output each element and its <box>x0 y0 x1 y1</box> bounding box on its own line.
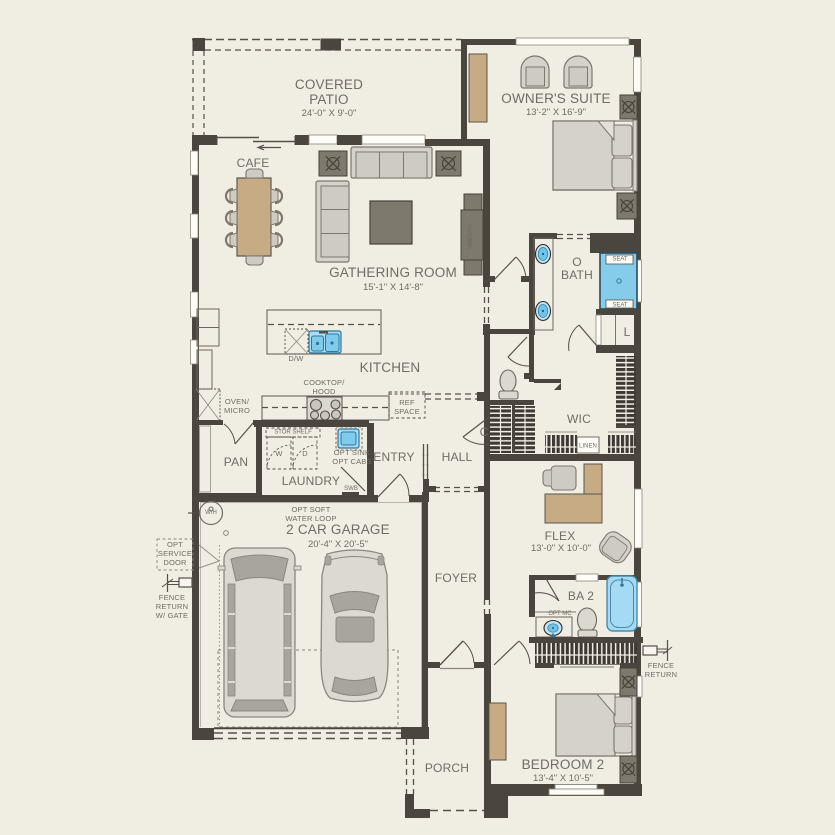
svg-text:COOKTOP/: COOKTOP/ <box>303 378 345 387</box>
svg-text:RETURN: RETURN <box>156 602 188 611</box>
svg-text:OPT CABS: OPT CABS <box>332 457 371 466</box>
svg-text:15'-1" X 14'-8": 15'-1" X 14'-8" <box>363 282 423 293</box>
svg-text:BA 2: BA 2 <box>568 589 594 603</box>
svg-text:13'-0" X 10'-0": 13'-0" X 10'-0" <box>531 543 591 554</box>
svg-text:L: L <box>624 325 631 339</box>
svg-text:OPT: OPT <box>167 540 183 549</box>
svg-text:FLEX: FLEX <box>545 529 576 543</box>
svg-text:RETURN: RETURN <box>645 670 677 679</box>
svg-text:PATIO: PATIO <box>309 92 349 107</box>
svg-text:SPACE: SPACE <box>394 407 420 416</box>
svg-text:FENCE: FENCE <box>159 593 185 602</box>
svg-text:BEDROOM 2: BEDROOM 2 <box>522 757 605 772</box>
svg-text:GATHERING ROOM: GATHERING ROOM <box>329 265 457 280</box>
svg-text:2 CAR GARAGE: 2 CAR GARAGE <box>286 522 390 537</box>
svg-text:PORCH: PORCH <box>425 761 469 775</box>
svg-text:C: C <box>480 425 489 439</box>
svg-text:OPT SINK: OPT SINK <box>334 448 370 457</box>
svg-text:CAFE: CAFE <box>237 156 270 170</box>
svg-text:BATH: BATH <box>561 268 593 282</box>
svg-text:FENCE: FENCE <box>648 661 674 670</box>
svg-text:SWB: SWB <box>344 486 358 492</box>
svg-text:REF: REF <box>399 398 415 407</box>
svg-text:KITCHEN: KITCHEN <box>360 360 421 375</box>
svg-text:HALL: HALL <box>442 450 473 464</box>
svg-text:SERVICE: SERVICE <box>158 549 192 558</box>
svg-text:O: O <box>572 255 582 269</box>
svg-text:W/H: W/H <box>205 510 217 516</box>
svg-text:COVERED: COVERED <box>295 77 363 92</box>
svg-text:SEAT: SEAT <box>612 303 628 309</box>
svg-text:ENTRY: ENTRY <box>373 450 414 464</box>
svg-text:DOOR: DOOR <box>163 558 187 567</box>
svg-text:W/ GATE: W/ GATE <box>156 611 189 620</box>
svg-text:D: D <box>302 449 308 458</box>
svg-text:W: W <box>275 449 283 458</box>
svg-text:HOOD: HOOD <box>312 387 336 396</box>
svg-text:13'-4" X 10'-5": 13'-4" X 10'-5" <box>533 773 593 784</box>
svg-text:D/W: D/W <box>288 354 304 363</box>
svg-text:OPT SOFT: OPT SOFT <box>292 505 331 514</box>
svg-text:LINEN: LINEN <box>579 444 597 450</box>
svg-text:PAN: PAN <box>224 455 248 469</box>
svg-text:MICRO: MICRO <box>224 406 250 415</box>
svg-text:20'-4" X 20'-5": 20'-4" X 20'-5" <box>308 539 368 550</box>
svg-text:13'-2" X 16'-9": 13'-2" X 16'-9" <box>526 107 586 118</box>
svg-text:WIC: WIC <box>567 412 591 426</box>
svg-text:OWNER'S SUITE: OWNER'S SUITE <box>501 91 610 106</box>
svg-text:FOYER: FOYER <box>435 571 477 585</box>
svg-text:OPT MC: OPT MC <box>548 611 572 617</box>
svg-text:WHD: WHD <box>468 234 474 249</box>
svg-text:24'-0" X 9'-0": 24'-0" X 9'-0" <box>302 108 357 119</box>
svg-text:SEAT: SEAT <box>612 257 628 263</box>
svg-text:LAUNDRY: LAUNDRY <box>282 474 341 488</box>
svg-text:OVEN/: OVEN/ <box>225 397 250 406</box>
svg-text:STOR SHELF: STOR SHELF <box>274 430 312 436</box>
